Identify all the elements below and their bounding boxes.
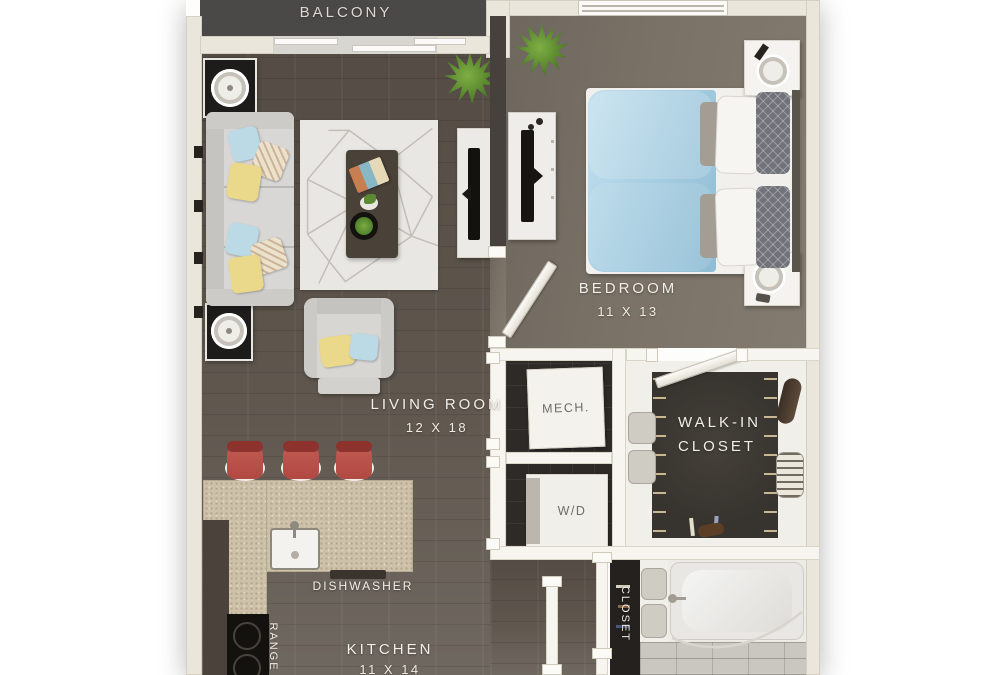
floorplan: MECH. W/D: [0, 0, 1000, 675]
sofa-pillow-yellow-1: [225, 162, 262, 203]
stool-back: [227, 441, 263, 452]
washer-dryer-label: W/D: [548, 504, 587, 518]
mech-door-jamb-top: [486, 352, 500, 364]
plant-bowl-greens: [355, 217, 373, 235]
walkin-dark-area: [652, 372, 778, 538]
bedroom-label: BEDROOM: [528, 280, 728, 297]
bar-stool-1: [227, 441, 263, 481]
closet-striped-basket: [776, 452, 804, 498]
entry-wall-jamb-bottom: [542, 664, 562, 675]
hall-wall-jamb-bottom: [592, 648, 612, 659]
laundry-door-jamb-bottom: [486, 538, 500, 550]
entry-wall-jamb-top: [542, 576, 562, 587]
washer-dryer-door-band: [526, 478, 540, 544]
bedroom-door-jamb-top: [488, 246, 506, 258]
bedroom-tv-mount: [534, 168, 543, 184]
walkin-closet-label-line2: CLOSET: [678, 438, 798, 455]
bed-pillow-pattern-1: [756, 92, 790, 174]
laundry-door-jamb-top: [486, 456, 500, 468]
walkin-door-jamb-right: [736, 348, 748, 362]
dresser-knobs: [551, 140, 554, 200]
sliding-door-panel-1: [274, 38, 338, 45]
hall-wall-jamb-top: [592, 552, 612, 563]
sliding-door-panel-3: [414, 38, 466, 45]
window-tick-1: [194, 146, 203, 158]
armchair-arm-left: [304, 298, 317, 378]
mech-door-jamb-bottom: [486, 438, 500, 450]
wall-bedroom-accent: [490, 16, 506, 256]
stool-back: [283, 441, 319, 452]
kitchen-label: KITCHEN: [300, 641, 480, 658]
window-tick-3: [194, 252, 203, 264]
sofa-pillow-yellow-2: [228, 254, 265, 294]
walkin-door-jamb-left: [646, 348, 658, 362]
wall-entry: [546, 580, 558, 675]
sink-drain: [291, 551, 299, 559]
window-tick-2: [194, 200, 203, 212]
bar-stool-3: [336, 441, 372, 481]
duvet-fold-bottom: [589, 183, 713, 271]
bedroom-dims: 11 X 13: [528, 304, 728, 319]
bedroom-door-jamb-bottom: [488, 336, 506, 348]
base-cabinet-strip: [203, 520, 229, 675]
living-room-dims: 12 X 18: [330, 420, 544, 435]
stool-back: [336, 441, 372, 452]
dishwasher-front: [330, 570, 386, 579]
bedroom-window-mullion-1: [582, 5, 724, 7]
sink-faucet-stem: [293, 529, 296, 538]
living-room-label: LIVING ROOM: [330, 396, 544, 413]
range-burner-2: [233, 654, 261, 675]
greens-sprig: [364, 194, 376, 204]
bed-pillow-white-1: [715, 95, 762, 174]
hall-closet-label: CLOSET: [619, 574, 631, 654]
tv-mount: [462, 186, 471, 202]
closet-hangers-right: [764, 378, 777, 538]
wall-mech-top: [490, 348, 626, 361]
balcony-label: BALCONY: [246, 4, 446, 21]
wall-bottom-run: [490, 546, 820, 560]
lamp-finial-top: [227, 85, 233, 91]
closet-basket-1: [628, 412, 656, 444]
range-burner-1: [233, 622, 261, 650]
sofa-back: [206, 112, 224, 306]
kitchen-dims: 11 X 14: [300, 662, 480, 675]
bed-pillow-pattern-2: [756, 186, 790, 268]
armchair-arm-right: [381, 298, 394, 378]
mech-label: MECH.: [542, 400, 590, 416]
armchair-pillow-blue: [349, 333, 380, 362]
bedroom-tv-screen: [521, 130, 534, 222]
wall-walkin-top-right: [742, 348, 820, 361]
bar-stool-2: [283, 441, 319, 481]
wall-left-exterior: [186, 16, 202, 675]
shower-curtain: [660, 590, 810, 650]
sliding-door-panel-2: [352, 45, 436, 52]
bed-pillow-white-2: [715, 187, 762, 266]
nightstand-lamp-top: [756, 54, 790, 88]
dresser-decor-1: [536, 118, 543, 125]
closet-basket-2: [628, 450, 656, 484]
bedroom-window-mullion-2: [582, 10, 724, 12]
armchair-ottoman: [318, 378, 380, 394]
bedroom-window: [578, 0, 728, 16]
wall-right-exterior: [806, 0, 820, 675]
dishwasher-label: DISHWASHER: [288, 579, 438, 593]
headboard: [792, 90, 800, 272]
lamp-finial-bottom: [226, 328, 232, 334]
window-tick-4: [194, 306, 203, 318]
walkin-closet-label-line1: WALK-IN: [678, 414, 798, 431]
range-label: RANGE: [267, 607, 279, 675]
wall-mech-laundry: [506, 452, 612, 464]
dresser-decor-2: [528, 124, 534, 130]
slider-wall-left: [200, 36, 274, 54]
duvet-fold-top: [589, 91, 713, 179]
wall-closets-vertical: [612, 348, 626, 560]
